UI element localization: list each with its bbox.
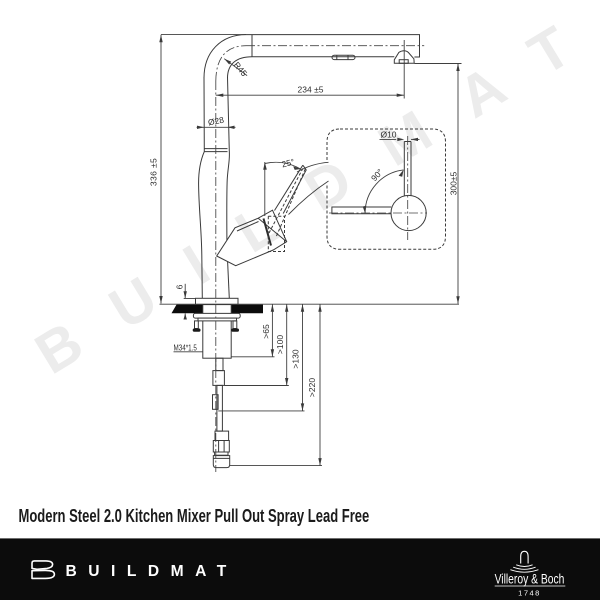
svg-text:>220: >220: [307, 378, 317, 397]
svg-text:Villeroy & Boch: Villeroy & Boch: [495, 571, 565, 587]
svg-text:>130: >130: [291, 349, 301, 368]
svg-text:Ø10: Ø10: [380, 130, 396, 140]
svg-text:336 ±5: 336 ±5: [149, 158, 159, 186]
svg-text:300±5: 300±5: [449, 171, 459, 195]
svg-text:BUILDMAT: BUILDMAT: [66, 563, 238, 580]
svg-text:1748: 1748: [518, 589, 541, 598]
svg-text:>65: >65: [261, 324, 271, 339]
svg-text:>100: >100: [275, 335, 285, 354]
svg-text:234 ±5: 234 ±5: [298, 85, 324, 95]
svg-text:6: 6: [175, 284, 185, 289]
svg-text:M34*1.5: M34*1.5: [174, 343, 197, 353]
svg-text:Modern Steel 2.0 Kitchen Mixer: Modern Steel 2.0 Kitchen Mixer Pull Out …: [19, 506, 370, 527]
